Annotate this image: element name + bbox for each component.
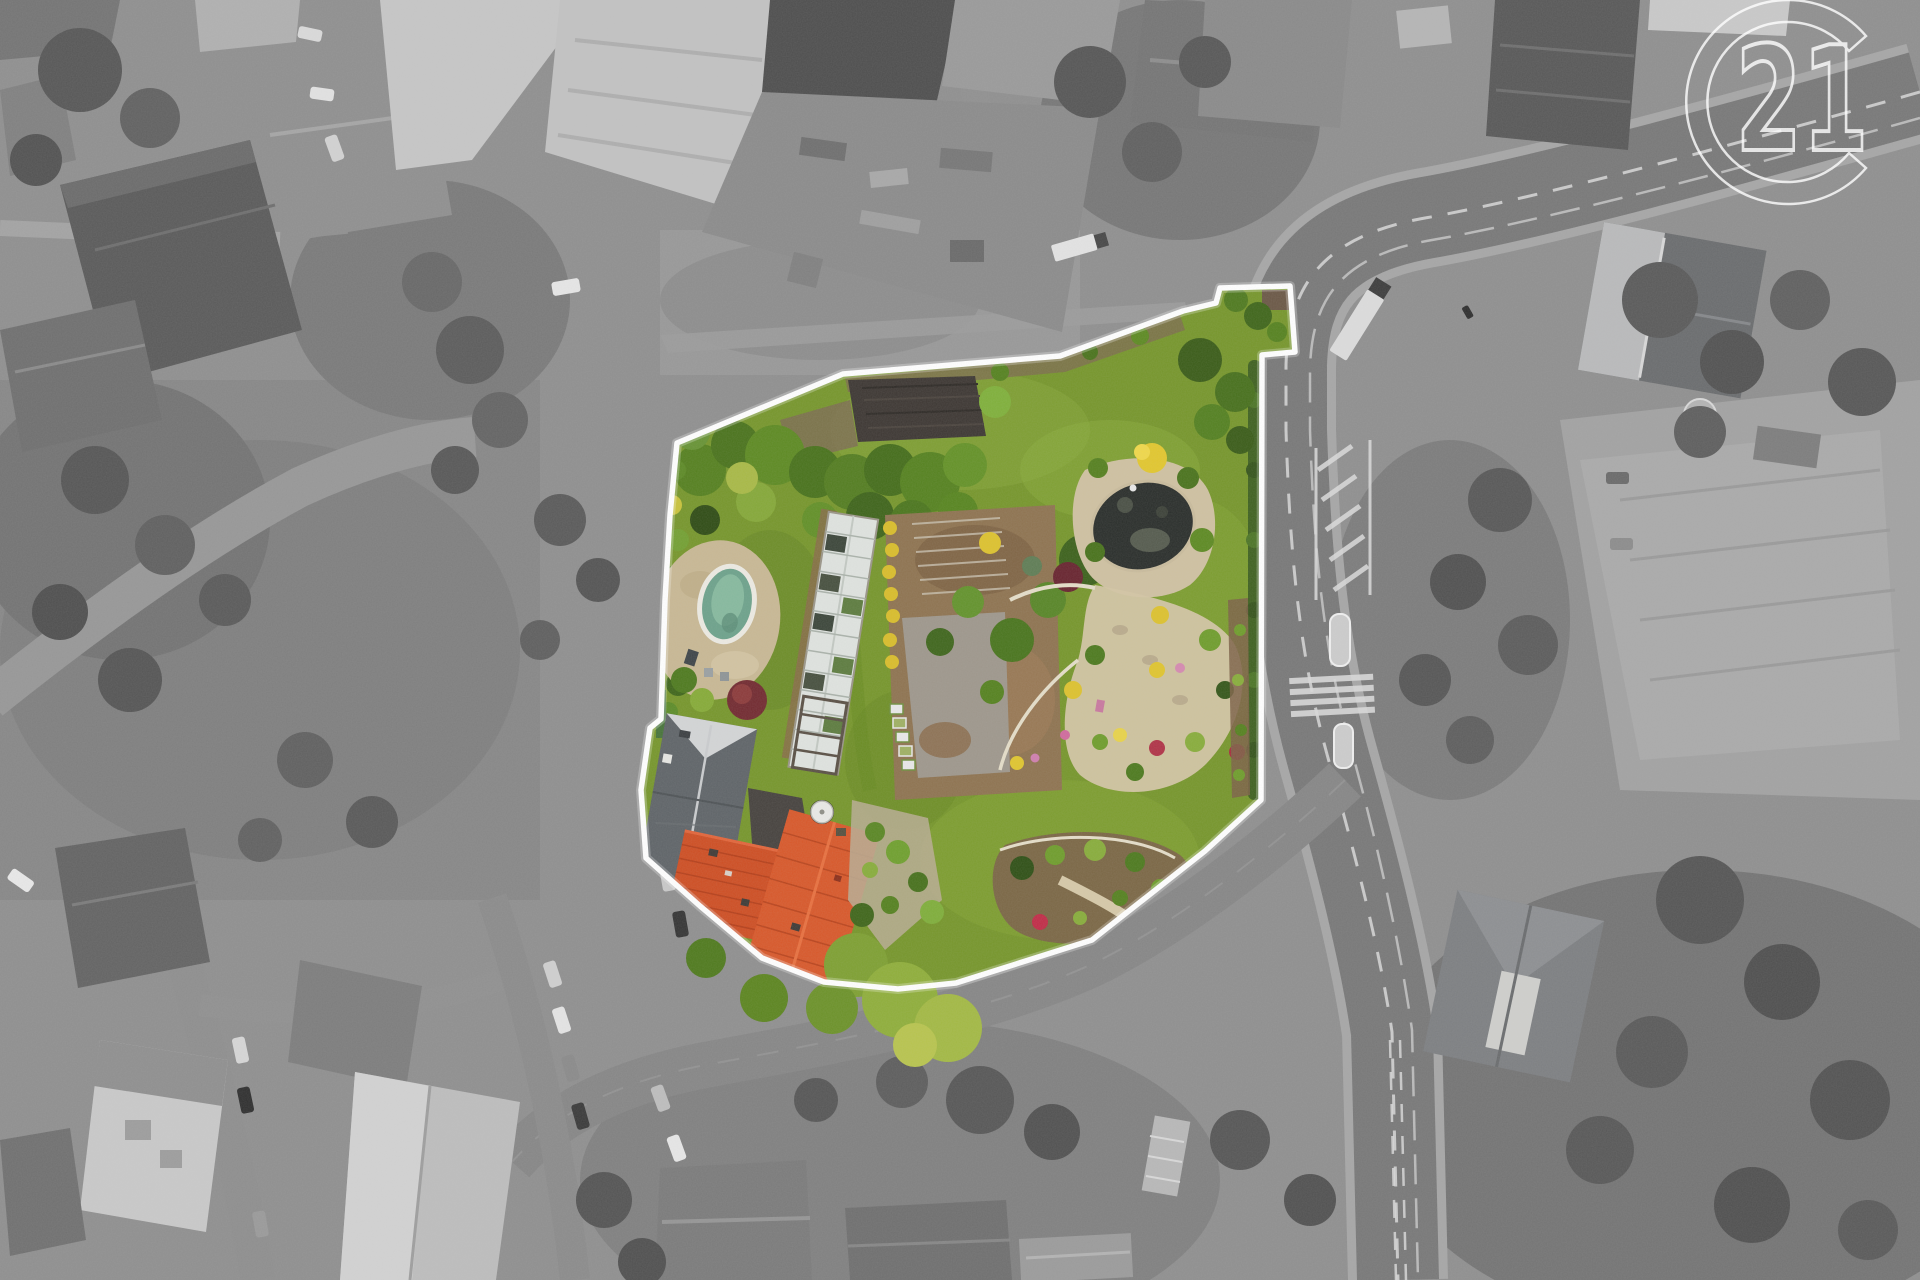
- aerial-photograph: 21: [0, 0, 1920, 1280]
- c21-numerals: 21: [1735, 15, 1868, 184]
- aerial-photo-stage: 21: [0, 0, 1920, 1280]
- film-grain-overlay: [0, 0, 1920, 1280]
